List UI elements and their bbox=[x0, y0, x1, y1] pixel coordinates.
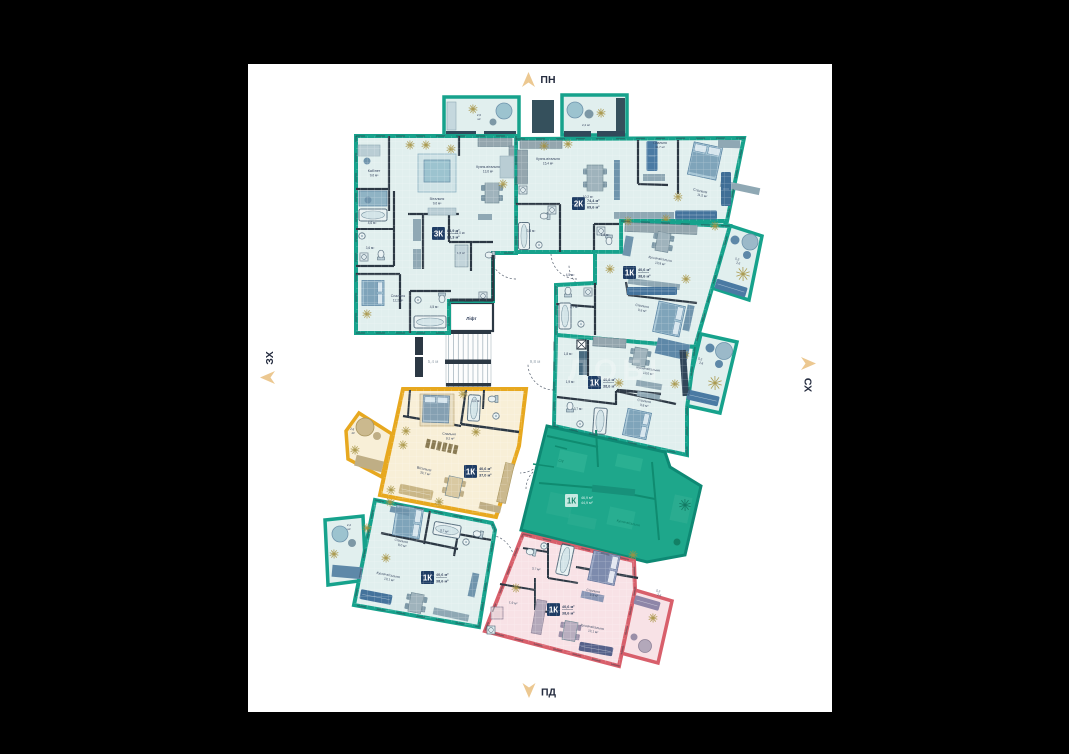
svg-text:ПД: ПД bbox=[541, 687, 557, 699]
svg-text:4,5 м²: 4,5 м² bbox=[566, 273, 575, 277]
svg-text:C/y: C/y bbox=[558, 459, 563, 463]
svg-text:Ліфт: Ліфт bbox=[466, 315, 477, 321]
svg-text:5,4 м: 5,4 м bbox=[428, 359, 439, 364]
svg-text:ЛОБІ: ЛОБІ bbox=[568, 354, 662, 387]
svg-text:44,9 м²: 44,9 м² bbox=[581, 501, 593, 505]
svg-text:СХ: СХ bbox=[802, 378, 814, 392]
svg-text:1К: 1К bbox=[567, 496, 576, 505]
svg-text:ЗХ: ЗХ bbox=[264, 351, 276, 365]
svg-text:ПН: ПН bbox=[540, 74, 555, 86]
svg-text:9,8 м: 9,8 м bbox=[530, 359, 541, 364]
svg-text:м²: м² bbox=[477, 117, 480, 121]
svg-text:2,2 м²: 2,2 м² bbox=[582, 123, 590, 127]
svg-text:м²: м² bbox=[347, 527, 350, 531]
svg-text:46,9 м²: 46,9 м² bbox=[581, 496, 593, 500]
